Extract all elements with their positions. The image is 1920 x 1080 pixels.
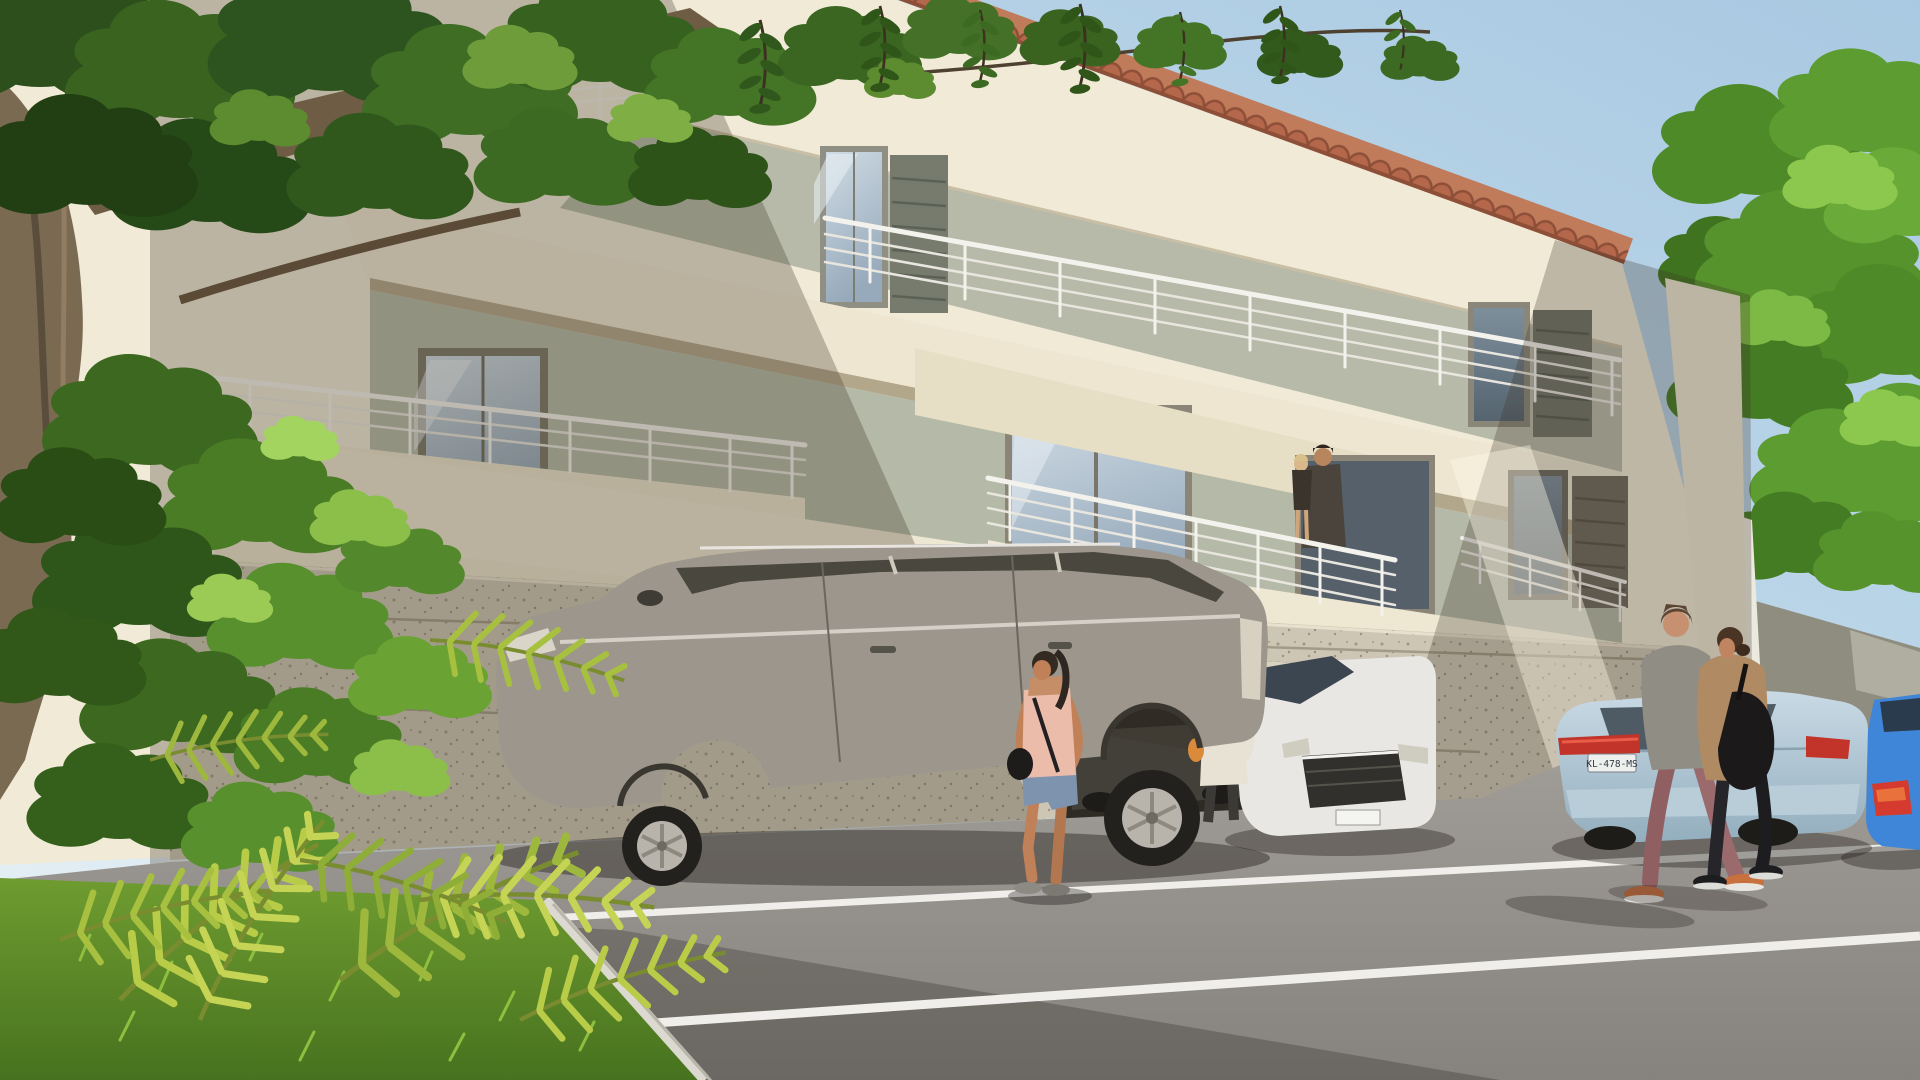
white-sedan-grille	[1302, 750, 1406, 808]
sneaker	[1014, 882, 1042, 894]
wagon-taillight	[1240, 618, 1262, 700]
side-mirror	[637, 590, 663, 606]
scene-render: KL-478-MS	[0, 0, 1920, 1080]
face	[1663, 611, 1689, 637]
rendering-canvas: KL-478-MS	[0, 0, 1920, 1080]
sneaker	[1042, 884, 1070, 896]
crossbody-bag	[1007, 748, 1033, 780]
face	[1719, 638, 1735, 658]
wagon-front-wheel	[622, 806, 702, 886]
face	[1033, 660, 1051, 680]
white-sedan-plate	[1336, 810, 1380, 825]
license-plate-text: KL-478-MS	[1586, 759, 1638, 770]
bright-blue-car-window	[1880, 698, 1920, 732]
wagon-rear-wheel	[1104, 770, 1200, 866]
license-plate: KL-478-MS	[1586, 754, 1638, 772]
blue-sedan-taillight	[1806, 736, 1850, 759]
hair-bun	[1736, 644, 1750, 656]
